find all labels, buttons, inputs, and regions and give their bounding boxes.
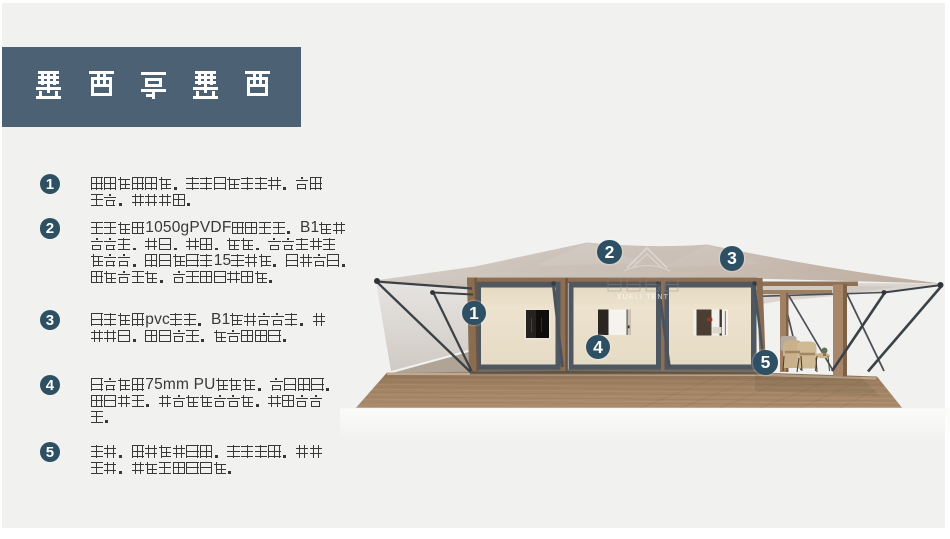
svg-text:XUELI TENT: XUELI TENT: [617, 294, 669, 301]
